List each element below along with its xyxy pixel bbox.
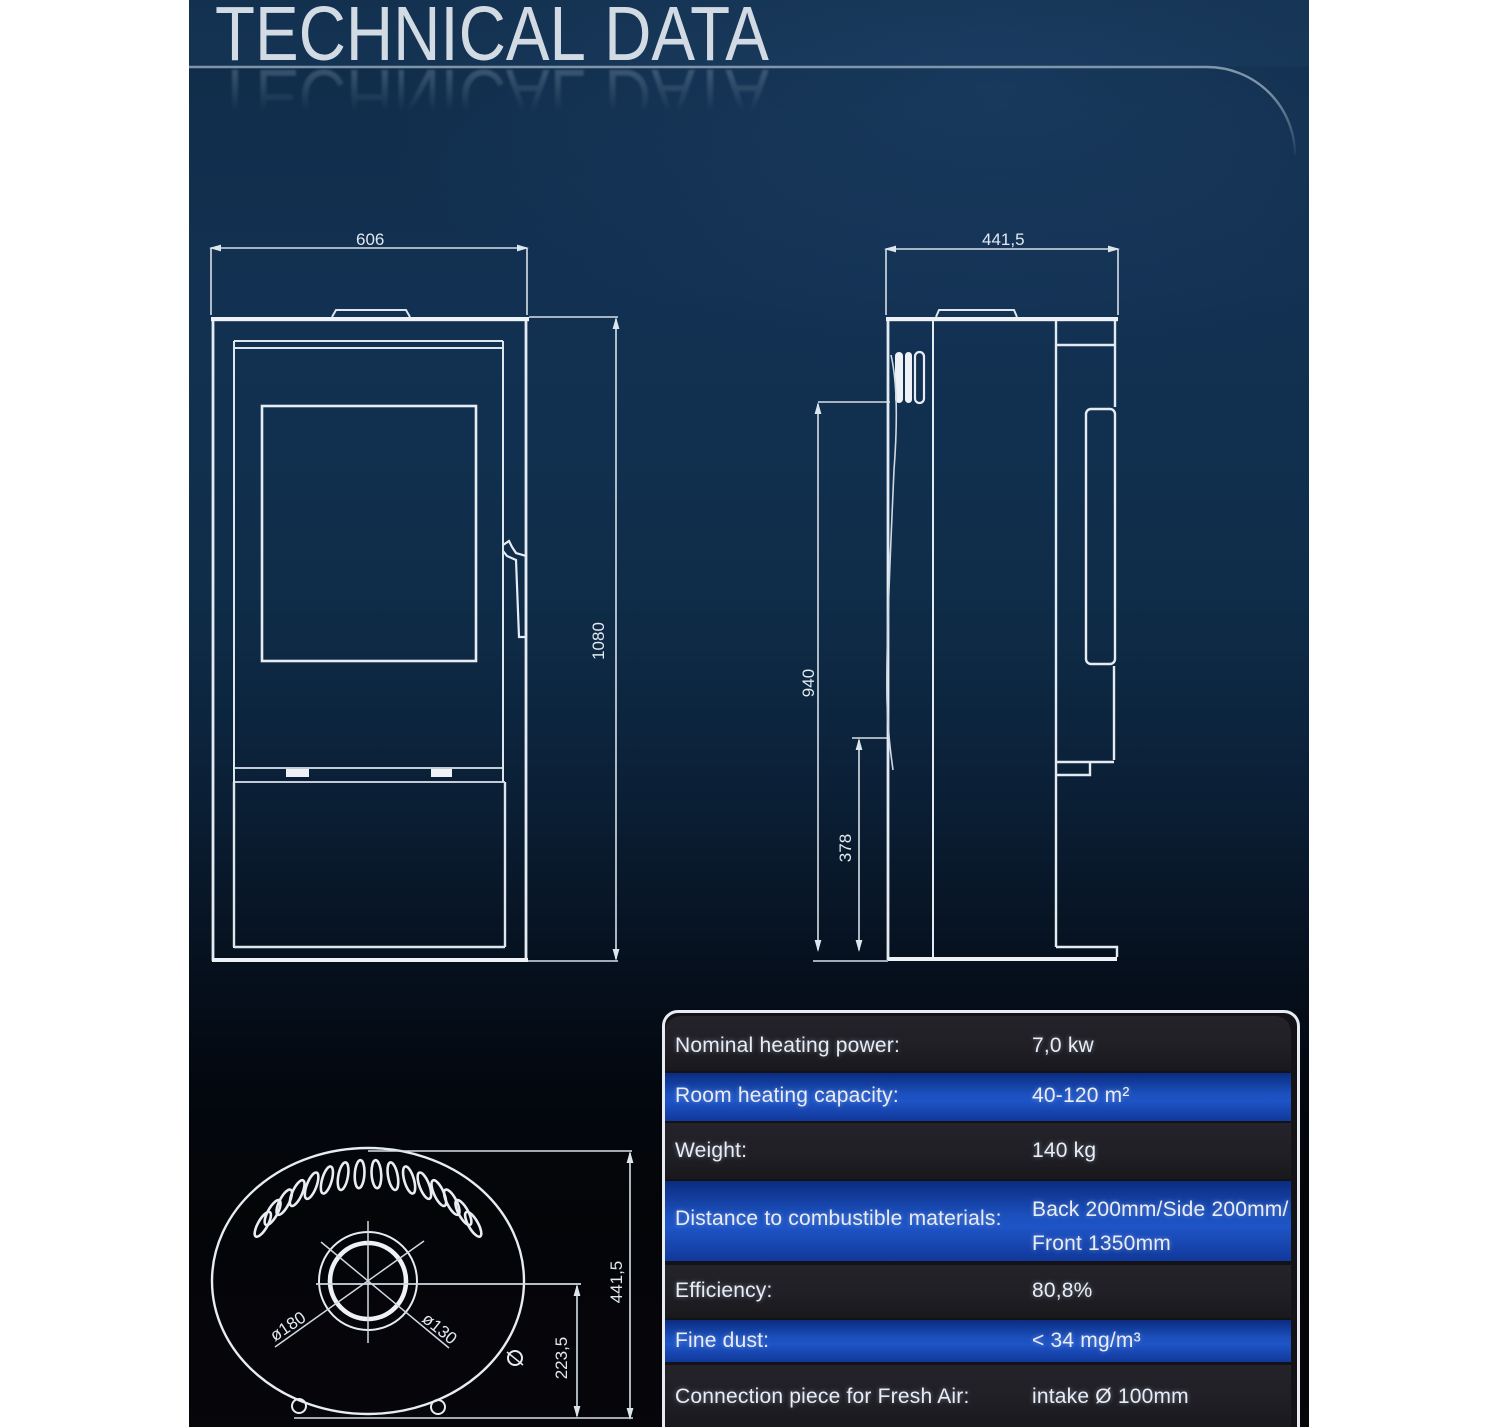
svg-text:441,5: 441,5: [607, 1261, 626, 1304]
svg-text:ø180: ø180: [267, 1308, 310, 1345]
svg-text:378: 378: [836, 834, 855, 862]
svg-text:940: 940: [799, 669, 818, 697]
svg-text:1080: 1080: [589, 622, 608, 660]
svg-text:ø130: ø130: [418, 1309, 460, 1348]
svg-text:223,5: 223,5: [552, 1337, 571, 1380]
svg-text:441,5: 441,5: [982, 230, 1025, 249]
svg-text:606: 606: [356, 230, 384, 249]
